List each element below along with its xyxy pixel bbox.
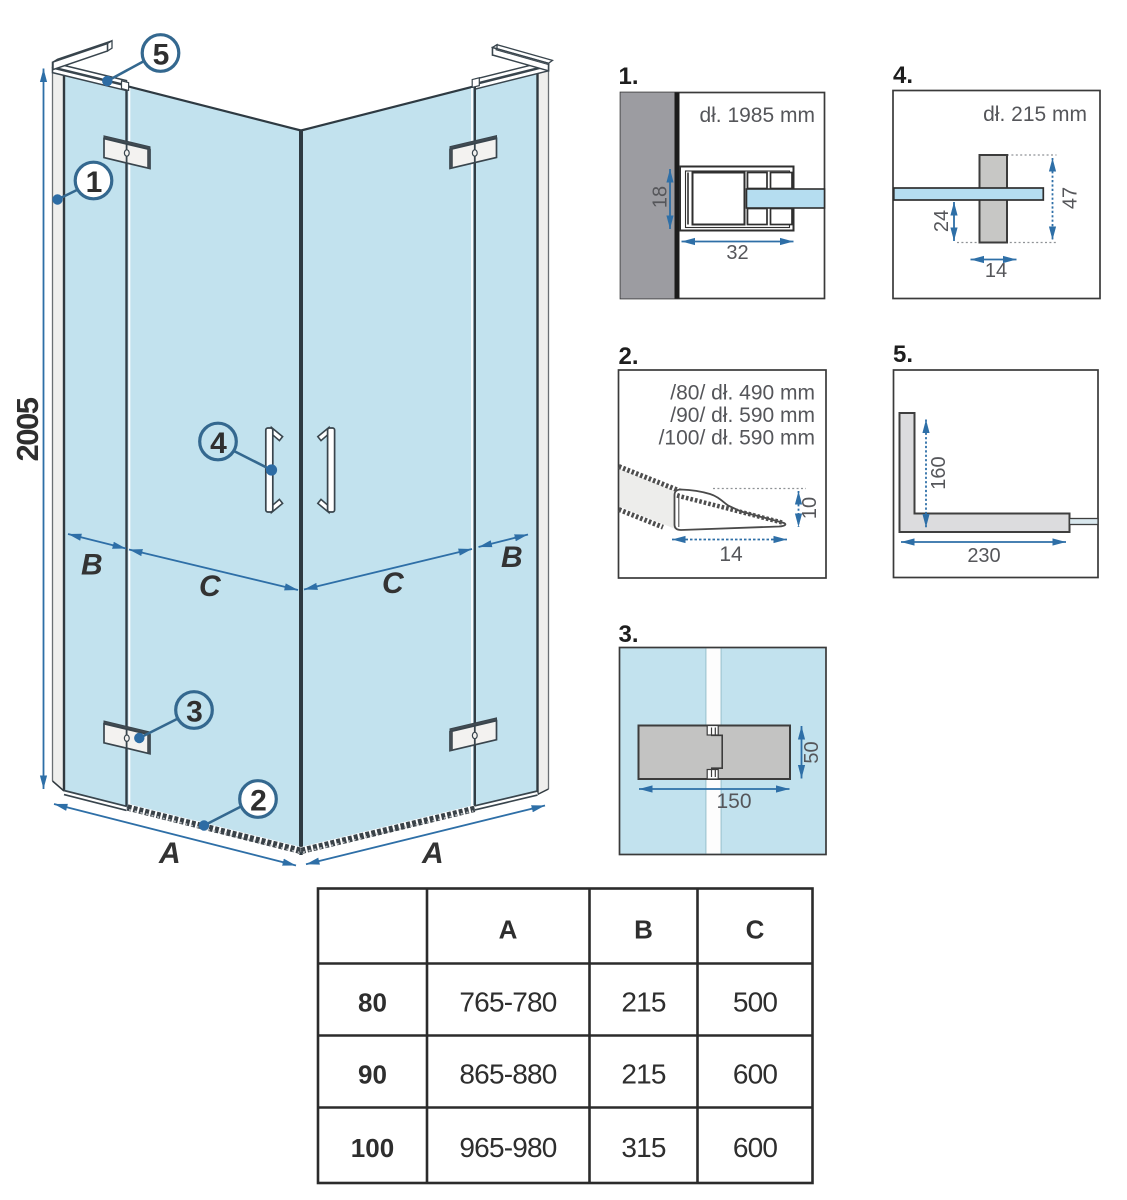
svg-text:4: 4 xyxy=(210,427,227,460)
svg-text:765-780: 765-780 xyxy=(459,987,556,1018)
svg-text:14: 14 xyxy=(719,543,743,566)
svg-text:C: C xyxy=(382,567,405,600)
svg-text:160: 160 xyxy=(928,456,950,489)
svg-text:B: B xyxy=(634,915,653,945)
svg-text:A: A xyxy=(421,837,444,870)
svg-text:2: 2 xyxy=(250,785,266,818)
svg-text:24: 24 xyxy=(931,210,953,232)
svg-text:80: 80 xyxy=(358,988,387,1018)
svg-text:500: 500 xyxy=(733,987,778,1018)
svg-text:A: A xyxy=(158,837,181,870)
svg-text:3.: 3. xyxy=(619,621,639,648)
svg-text:50: 50 xyxy=(801,741,823,763)
svg-text:/90/ dł. 590 mm: /90/ dł. 590 mm xyxy=(670,404,815,427)
svg-text:315: 315 xyxy=(621,1132,666,1163)
svg-text:A: A xyxy=(499,915,518,945)
svg-text:B: B xyxy=(501,541,523,574)
svg-text:/100/ dł. 590 mm: /100/ dł. 590 mm xyxy=(659,427,815,450)
svg-text:3: 3 xyxy=(186,696,202,729)
svg-text:/80/ dł. 490 mm: /80/ dł. 490 mm xyxy=(670,382,815,405)
svg-text:215: 215 xyxy=(621,987,666,1018)
svg-text:1: 1 xyxy=(86,166,102,199)
svg-text:B: B xyxy=(81,549,103,582)
svg-text:90: 90 xyxy=(358,1060,387,1090)
svg-text:10: 10 xyxy=(799,497,821,519)
svg-text:865-880: 865-880 xyxy=(459,1059,556,1090)
svg-text:C: C xyxy=(746,915,765,945)
svg-text:100: 100 xyxy=(351,1133,394,1163)
svg-text:14: 14 xyxy=(985,260,1007,282)
svg-text:2005: 2005 xyxy=(10,397,45,461)
svg-text:C: C xyxy=(199,570,222,603)
svg-text:150: 150 xyxy=(716,790,751,813)
svg-text:4.: 4. xyxy=(893,62,913,89)
svg-text:215: 215 xyxy=(621,1059,666,1090)
svg-text:5: 5 xyxy=(153,39,169,72)
svg-text:1.: 1. xyxy=(619,63,639,90)
svg-text:18: 18 xyxy=(649,186,671,208)
svg-text:32: 32 xyxy=(726,242,748,264)
svg-text:600: 600 xyxy=(733,1132,778,1163)
svg-text:230: 230 xyxy=(967,545,1000,567)
svg-text:5.: 5. xyxy=(893,341,913,368)
svg-text:47: 47 xyxy=(1059,187,1081,209)
svg-text:965-980: 965-980 xyxy=(459,1132,556,1163)
svg-text:dł. 215 mm: dł. 215 mm xyxy=(983,103,1087,126)
svg-text:600: 600 xyxy=(733,1059,778,1090)
svg-text:2.: 2. xyxy=(619,343,639,370)
svg-text:dł. 1985 mm: dł. 1985 mm xyxy=(699,104,815,127)
